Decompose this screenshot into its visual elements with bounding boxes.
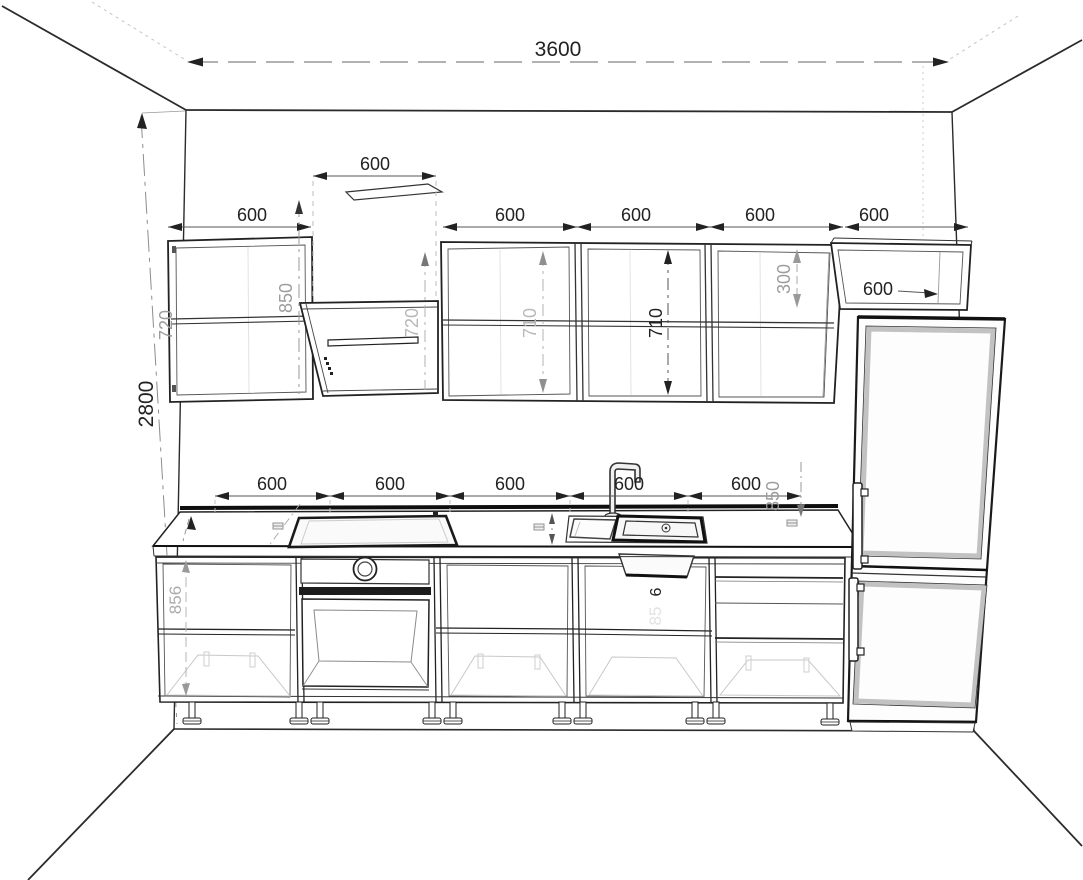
dim-base-cabinet2-width-label: 600	[375, 474, 405, 494]
leg	[290, 702, 308, 724]
leg	[311, 702, 329, 724]
dim-left-cabinet-height-label: 720	[156, 310, 176, 340]
refrigerator	[848, 317, 1005, 732]
dim-base-cabinet5-width-label: 600	[731, 474, 761, 494]
leg	[423, 702, 441, 724]
leg	[686, 702, 704, 724]
dim-sink-cabinet-height-ghost-label: 85	[646, 607, 665, 626]
leg	[183, 702, 201, 724]
dim-room-width-label: 3600	[535, 38, 582, 61]
dim-hood-height-label: 720	[402, 308, 422, 338]
dim-room-height-label: 2800	[135, 381, 158, 428]
kitchen-elevation-drawing: 3600 2800 720 600	[0, 0, 1083, 880]
dim-corner-cabinet-width-label: 600	[859, 205, 889, 225]
dim-room-width: 3600	[92, 2, 1018, 67]
wall-vent	[346, 184, 442, 200]
corner-wall-cabinet	[831, 66, 972, 310]
dim-worktop-height-label: 850	[763, 481, 783, 511]
dim-wall-cabinet1-height-label: 710	[520, 308, 540, 338]
dim-wall-cabinet2-width-label: 600	[621, 205, 651, 225]
dim-hood-width-label: 600	[360, 154, 390, 174]
sink-bowl-under	[619, 554, 694, 577]
oven-handle-bar	[299, 587, 431, 595]
hinge-mark	[172, 246, 176, 253]
leg	[821, 703, 839, 725]
dim-corner-cabinet-depth-label: 600	[863, 279, 893, 299]
hinge-mark	[172, 385, 176, 392]
leg	[553, 702, 571, 724]
dim-hood-clearance-label: 850	[276, 283, 296, 313]
backsplash-line	[180, 506, 838, 508]
leg	[444, 702, 462, 724]
cooktop	[289, 512, 457, 547]
dim-base-cabinet3-width-label: 600	[495, 474, 525, 494]
dim-corner-cabinet-width: 600	[845, 205, 968, 231]
dim-left-cabinet-width-label: 600	[237, 205, 267, 225]
wall-cabinet-left: 720	[156, 237, 313, 402]
dim-wall-cabinet3-width-label: 600	[745, 205, 775, 225]
sink-bowl	[613, 516, 705, 542]
oven-cabinet	[299, 558, 431, 691]
dim-hood-width: 600	[313, 154, 436, 298]
dim-wall-cabinet-widths: 600 600 600	[443, 205, 843, 231]
dim-wall-cabinet1-width-label: 600	[495, 205, 525, 225]
leg	[707, 702, 725, 724]
dim-corner-cabinet-height-label: 300	[774, 264, 794, 294]
sink-drainboard	[570, 519, 616, 539]
fixing-mark	[534, 524, 544, 530]
dim-wall-cabinet2-height-label: 710	[646, 308, 666, 338]
dim-base-cabinet1-width-label: 600	[257, 474, 287, 494]
sink	[566, 516, 707, 543]
dim-worktop-height: 850	[763, 462, 805, 517]
drawing-canvas: 3600 2800 720 600	[0, 0, 1083, 880]
dim-base-cabinet4-width-label: 600	[614, 474, 644, 494]
leg	[574, 702, 592, 724]
fixing-mark	[273, 523, 283, 529]
oven-knob	[354, 558, 377, 581]
dim-left-cabinet-width: 600	[168, 205, 311, 231]
countertop	[153, 504, 861, 557]
dim-base-carcass-height-label: 856	[166, 586, 185, 614]
dim-sink-cabinet-height-partial-label: 6	[648, 587, 665, 596]
fixing-mark	[787, 520, 797, 526]
cabinet-legs	[183, 702, 839, 725]
oven-cavity	[302, 599, 429, 687]
